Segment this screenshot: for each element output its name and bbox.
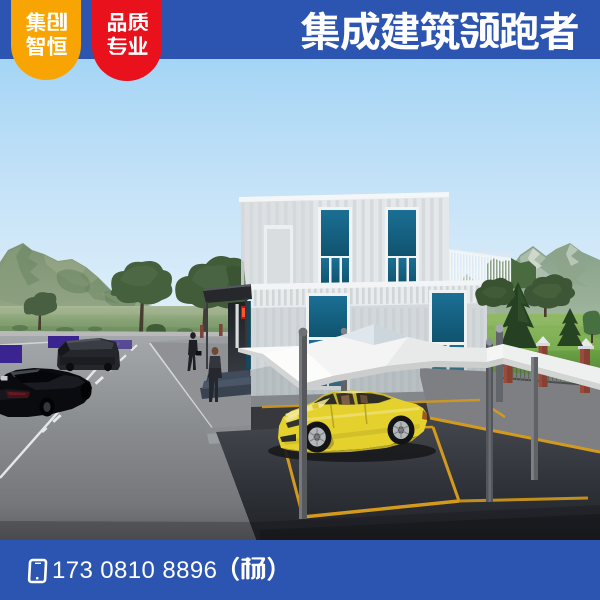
svg-text:173 0810 8896: 173 0810 8896 (52, 557, 217, 584)
